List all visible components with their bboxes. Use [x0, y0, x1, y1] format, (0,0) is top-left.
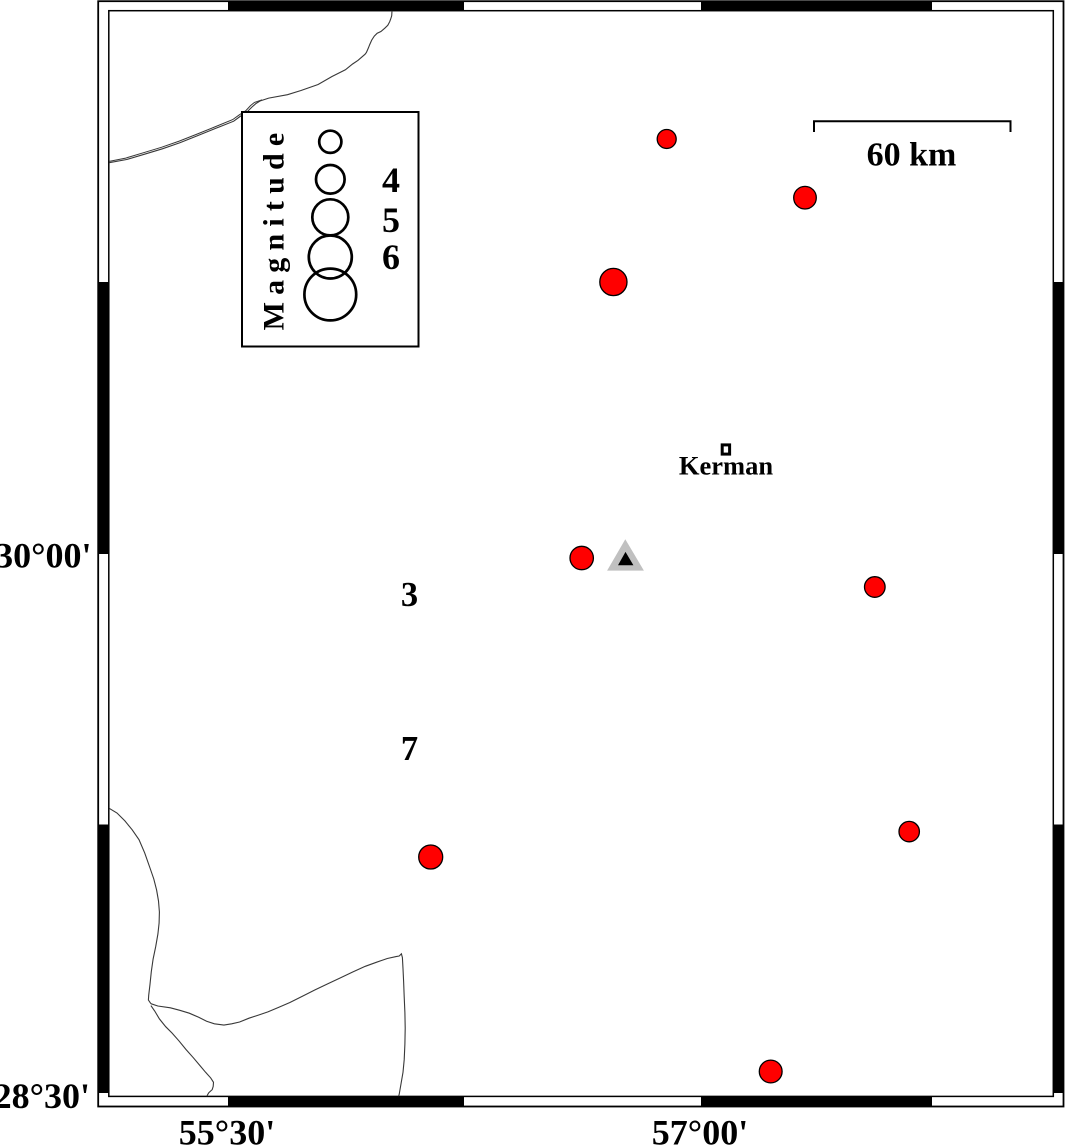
- svg-text:55°30': 55°30': [179, 1113, 275, 1145]
- svg-text:30°00': 30°00': [0, 536, 92, 576]
- svg-text:6: 6: [382, 237, 400, 277]
- svg-text:Kerman: Kerman: [679, 451, 773, 481]
- svg-text:3: 3: [401, 576, 418, 614]
- svg-text:4: 4: [382, 160, 400, 200]
- svg-text:57°00': 57°00': [652, 1113, 748, 1145]
- svg-text:7: 7: [401, 730, 418, 768]
- svg-text:5: 5: [382, 200, 400, 240]
- svg-text:60 km: 60 km: [867, 137, 957, 174]
- svg-text:28°30': 28°30': [0, 1076, 90, 1116]
- svg-text:Magnitude: Magnitude: [258, 126, 291, 331]
